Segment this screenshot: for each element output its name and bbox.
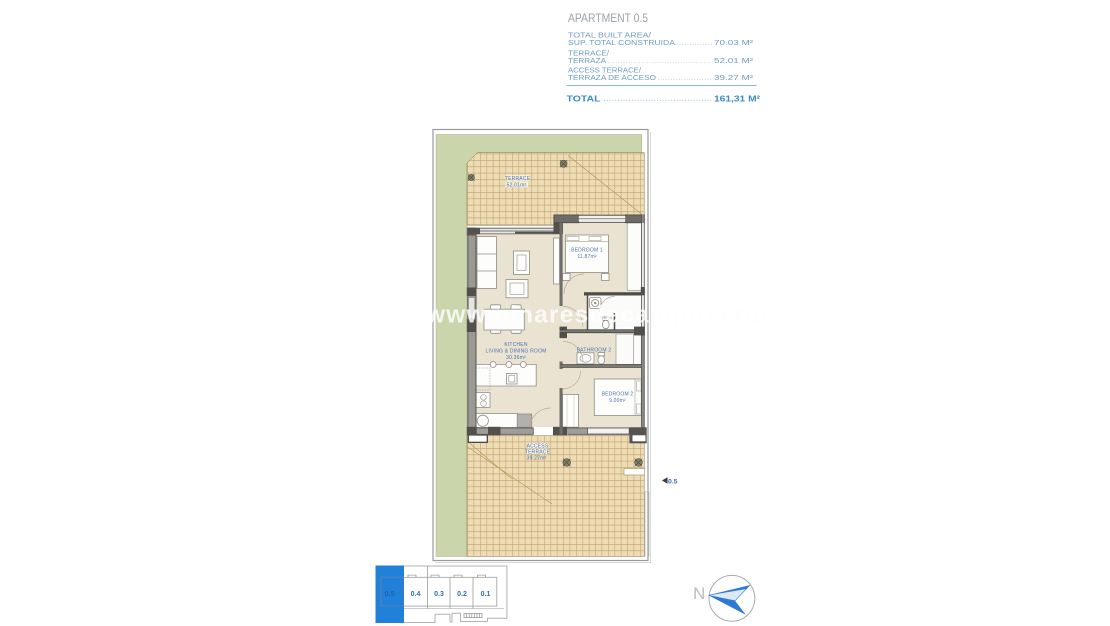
svg-text:TERRACE/: TERRACE/ [568,50,609,57]
svg-text:LIVING & DINING ROOM: LIVING & DINING ROOM [486,349,547,355]
svg-text:70.03 M²: 70.03 M² [714,40,754,47]
svg-text:BEDROOM 1: BEDROOM 1 [571,248,603,254]
svg-text:39.27m²: 39.27m² [527,456,547,462]
svg-text:0.3: 0.3 [434,591,444,598]
svg-text:N: N [693,584,705,603]
svg-text:SUP. TOTAL CONSTRUIDA: SUP. TOTAL CONSTRUIDA [568,40,675,47]
svg-text:0.5: 0.5 [668,479,678,486]
svg-text:BATHROOM 2: BATHROOM 2 [577,348,612,354]
svg-text:BEDROOM 2: BEDROOM 2 [602,392,634,398]
svg-text:161,31 M²: 161,31 M² [714,93,760,103]
svg-text:0.4: 0.4 [411,591,421,598]
svg-text:11.87m²: 11.87m² [577,254,597,260]
svg-text:TOTAL: TOTAL [567,93,601,103]
svg-text:ACCESS TERRACE/: ACCESS TERRACE/ [568,67,641,74]
svg-text:0.1: 0.1 [481,591,491,598]
svg-text:APARTMENT 0.5: APARTMENT 0.5 [568,11,648,25]
svg-text:TERRACE: TERRACE [505,176,531,182]
svg-text:KITCHEN: KITCHEN [504,342,528,348]
svg-text:52.01 M²: 52.01 M² [714,58,754,65]
svg-text:TERRAZA: TERRAZA [568,58,606,65]
svg-text:39.27 M²: 39.27 M² [714,75,754,82]
svg-text:52.01m²: 52.01m² [507,183,527,189]
svg-text:9.00m²: 9.00m² [609,398,626,404]
svg-text:www.pinaresdecampoverde: www.pinaresdecampoverde [425,302,777,329]
svg-text:0.2: 0.2 [457,591,467,598]
svg-text:30.36m²: 30.36m² [506,355,526,361]
svg-text:TOTAL BUILT AREA/: TOTAL BUILT AREA/ [568,32,651,39]
svg-text:TERRAZA DE ACCESO: TERRAZA DE ACCESO [568,75,657,82]
svg-text:0.5: 0.5 [385,591,395,598]
